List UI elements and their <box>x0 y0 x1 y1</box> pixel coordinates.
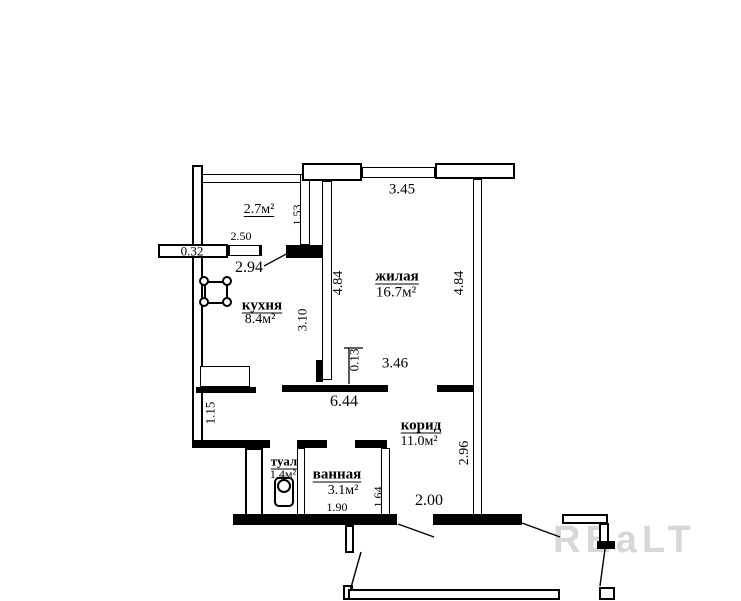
door-swing-landing-right <box>600 549 605 586</box>
dim-living-left: 4.84 <box>332 271 346 296</box>
floor-plan: 2.7м² 1.53 2.50 0.32 2.94 кухня 8.4м² 3.… <box>0 0 741 601</box>
dim-hall-width: 6.44 <box>330 394 358 410</box>
dim-kitchen-depth: 3.10 <box>296 309 309 332</box>
living-name-label: жилая <box>375 270 419 285</box>
door-swing-entry <box>522 523 560 537</box>
toilet-area-label: 1.4м² <box>270 468 296 480</box>
kitchen-dim-leader-line <box>264 252 290 266</box>
dim-kitchen-top: 2.94 <box>235 260 263 276</box>
dim-corridor-entry: 2.00 <box>415 493 443 509</box>
dim-living-top: 3.45 <box>389 183 415 198</box>
bath-name-label: ванная <box>313 468 362 483</box>
door-swing-overlay <box>0 0 741 601</box>
dim-hall-right: 3.46 <box>382 357 408 372</box>
dim-bath-width: 1.90 <box>327 501 348 513</box>
dim-balcony-window: 2.50 <box>231 230 252 242</box>
dim-bath-depth: 1.64 <box>372 487 384 508</box>
dim-wall-offset: 0.13 <box>348 349 361 372</box>
balcony-area-label: 2.7м² <box>244 203 275 217</box>
dim-ledge: 0.32 <box>181 245 204 258</box>
kitchen-area-label: 8.4м² <box>245 313 276 327</box>
door-swing-landing-left <box>350 552 361 591</box>
corridor-area-label: 11.0м² <box>400 435 437 449</box>
dim-corridor-depth: 2.96 <box>458 441 472 466</box>
dim-living-right: 4.84 <box>453 271 467 296</box>
dim-kitchen-left: 1.15 <box>204 402 217 425</box>
corridor-name-label: корид <box>401 419 442 434</box>
toilet-name-label: туал <box>271 455 297 468</box>
bath-area-label: 3.1м² <box>328 484 359 498</box>
dim-balcony-depth: 1.53 <box>291 205 303 226</box>
door-swing-left <box>398 524 434 537</box>
living-area-label: 16.7м² <box>376 286 416 301</box>
